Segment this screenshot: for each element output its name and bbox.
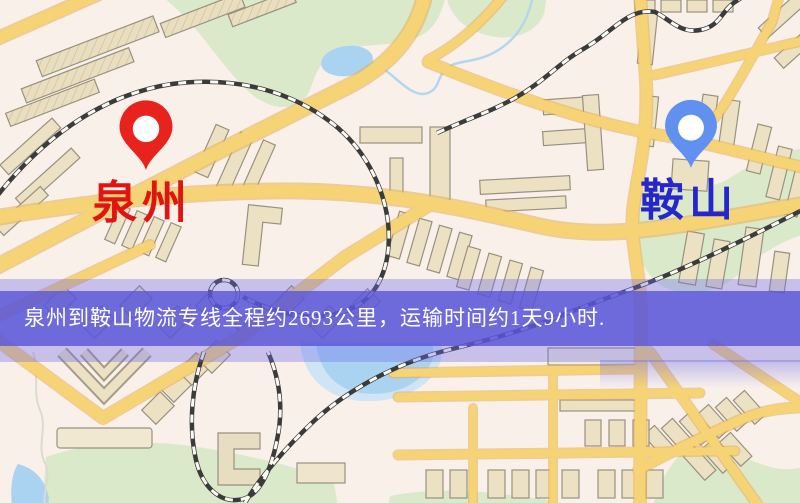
origin-pin-hole xyxy=(133,116,159,142)
destination-pin-hole xyxy=(678,115,704,141)
origin-label: 泉州 xyxy=(92,181,192,226)
map-canvas[interactable]: 泉州 鞍山 泉州到鞍山物流专线全程约2693公里，运输时间约1天9小时. xyxy=(0,0,800,503)
destination-label: 鞍山 xyxy=(640,179,738,223)
map-background xyxy=(0,0,800,503)
route-info-banner: 泉州到鞍山物流专线全程约2693公里，运输时间约1天9小时. xyxy=(0,291,800,346)
route-info-text: 泉州到鞍山物流专线全程约2693公里，运输时间约1天9小时. xyxy=(0,291,800,346)
route-banner-fade xyxy=(600,360,800,388)
